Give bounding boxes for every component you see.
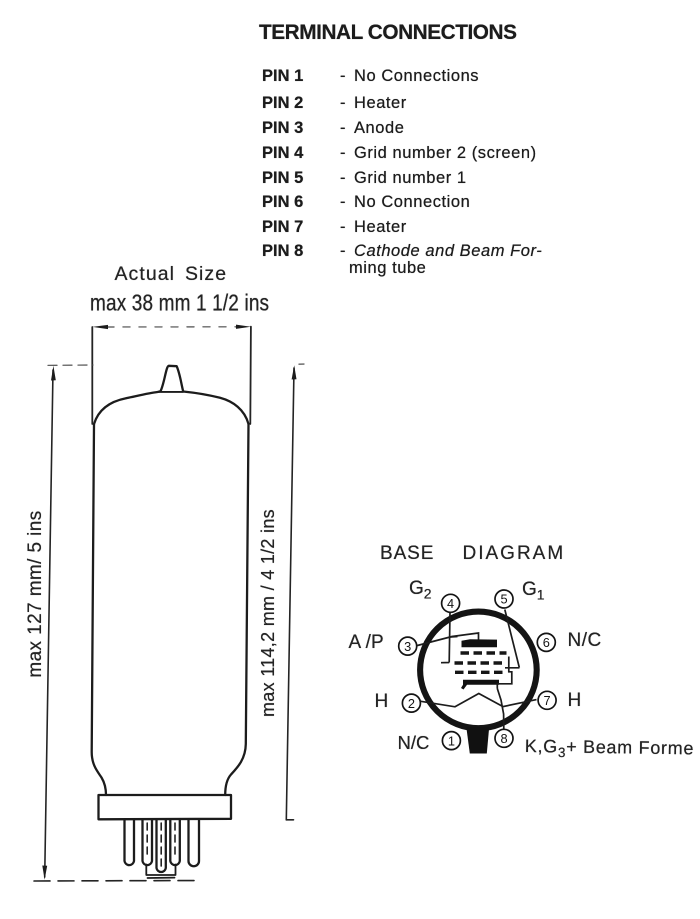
svg-text:8: 8 bbox=[500, 731, 507, 746]
svg-text:1: 1 bbox=[448, 733, 455, 748]
svg-text:5: 5 bbox=[500, 592, 507, 607]
svg-text:7: 7 bbox=[544, 693, 551, 708]
svg-text:2: 2 bbox=[408, 696, 415, 711]
svg-text:4: 4 bbox=[447, 596, 454, 611]
svg-text:6: 6 bbox=[543, 635, 550, 650]
svg-text:3: 3 bbox=[404, 639, 411, 654]
